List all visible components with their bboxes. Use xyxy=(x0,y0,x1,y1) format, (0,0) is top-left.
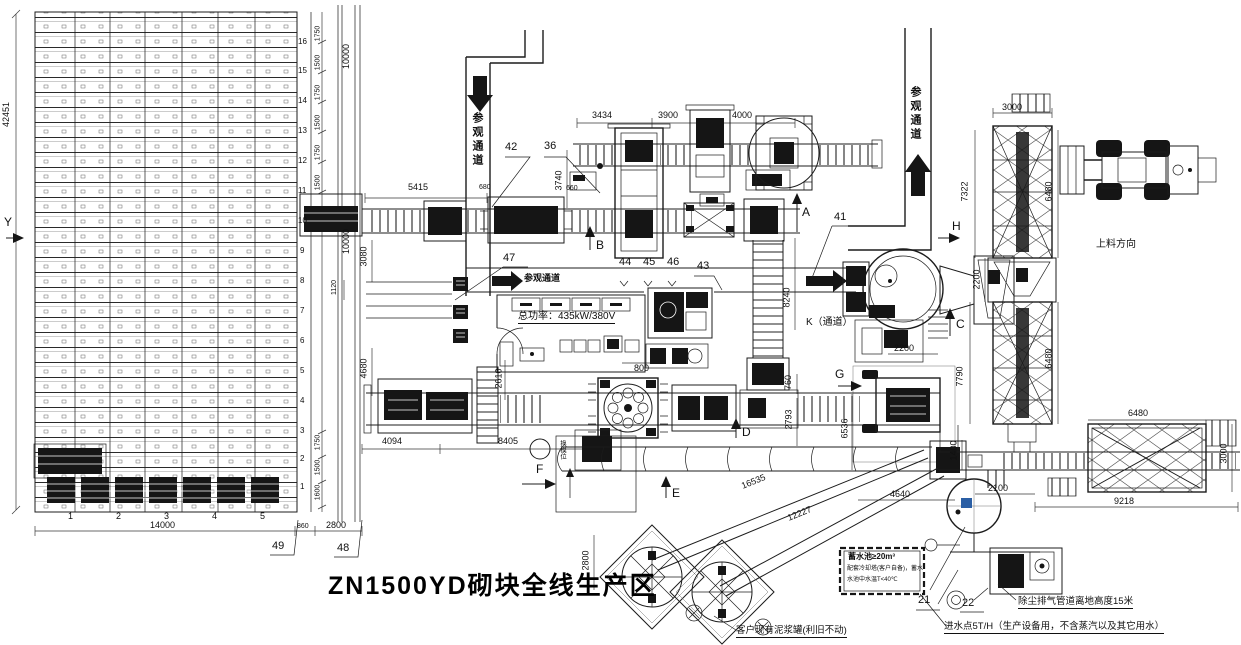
axis-letter-Y: Y xyxy=(4,216,12,228)
axis-letter-G: G xyxy=(835,368,844,380)
dim-6480: 6480 xyxy=(1045,348,1054,368)
row-number: 9 xyxy=(300,247,304,255)
dim-1400: 1400 xyxy=(950,440,959,460)
callout-22: 22 xyxy=(962,598,974,609)
dim-3000: 3000 xyxy=(1220,443,1229,463)
row-number: 4 xyxy=(300,397,304,405)
row-number: 7 xyxy=(300,307,304,315)
col-number: 5 xyxy=(260,512,265,521)
dim-2200: 2200 xyxy=(973,269,982,289)
row-number: 16 xyxy=(298,38,307,46)
callout-49: 49 xyxy=(272,541,284,552)
callout-47: 47 xyxy=(503,253,515,264)
row-number: 6 xyxy=(300,337,304,345)
visitor-passage-label: 参观通道 xyxy=(524,274,560,283)
callout-42: 42 xyxy=(505,142,517,153)
dim-7790: 7790 xyxy=(956,366,965,386)
dim-8240: 8240 xyxy=(783,287,792,307)
blue-marker xyxy=(961,498,972,508)
dim-2800: 2800 xyxy=(326,521,346,530)
dim-800: 800 xyxy=(634,364,649,373)
k-passage-label: K（通道） xyxy=(806,318,853,328)
dim-10000: 10000 xyxy=(342,229,351,254)
dim-pitch: 1600 xyxy=(314,485,321,501)
row-number: 2 xyxy=(300,455,304,463)
axis-letter-H: H xyxy=(952,220,961,232)
callout-48: 48 xyxy=(337,543,349,554)
dim-3000: 3000 xyxy=(1002,103,1022,112)
dim-3740: 3740 xyxy=(555,170,564,190)
dim-1120: 1120 xyxy=(331,280,338,295)
axis-letter-F: F xyxy=(536,463,543,475)
row-number: 14 xyxy=(298,97,307,105)
dim-pitch: 1750 xyxy=(314,26,321,42)
axis-letter-A: A xyxy=(802,206,810,218)
plant-layout-drawing: ZN1500YD砌块全线生产区 参观通道 参观通道 参观通道 K（通道） 上料方… xyxy=(0,0,1241,645)
aggregate-rack-upper xyxy=(993,94,1052,258)
visitor-passage-label: 参观通道 xyxy=(471,112,482,168)
mold-change-label: 换模位 xyxy=(558,440,565,460)
dim-2610: 2610 xyxy=(495,368,504,388)
callout-21: 21 xyxy=(918,595,930,606)
pool-note-line1: 蓄水池≥20m³ xyxy=(848,553,895,561)
cad-linework xyxy=(0,0,1241,645)
col-number: 4 xyxy=(212,512,217,521)
dim-760: 760 xyxy=(784,375,793,390)
aggregate-rack-lower xyxy=(993,302,1052,452)
pool-note-line2: 配套冷却塔(客户自备)，蓄水 xyxy=(847,566,923,572)
drawing-title: ZN1500YD砌块全线生产区 xyxy=(328,574,657,599)
callout-44: 44 xyxy=(619,257,631,268)
pool-note-line3: 水池中水温T<40℃ xyxy=(847,577,898,583)
water-inlet-note: 进水点5T/H（生产设备用，不含蒸汽以及其它用水） xyxy=(944,622,1164,634)
vertical-hoist xyxy=(747,240,789,390)
row-number: 1 xyxy=(300,483,304,491)
dim-4680: 4680 xyxy=(360,358,369,378)
hydraulic-room xyxy=(646,288,712,368)
dim-3900: 3900 xyxy=(658,111,678,120)
top-conveyor-line xyxy=(570,105,882,258)
flow-arrow-up-icon xyxy=(905,154,931,196)
callout-46: 46 xyxy=(667,257,679,268)
dim-pitch: 1500 xyxy=(314,115,321,131)
col-number: 3 xyxy=(164,512,169,521)
dim-pitch: 1750 xyxy=(314,435,321,451)
dim-pitch: 1750 xyxy=(314,85,321,101)
total-power-label: 总功率：435kW/380V xyxy=(518,312,615,324)
row-number: 10 xyxy=(298,217,307,225)
control-room xyxy=(495,295,645,372)
flow-arrow-down-icon xyxy=(467,76,493,112)
dim-pitch: 1500 xyxy=(314,55,321,71)
tilting-machine xyxy=(686,105,734,206)
row-number: 11 xyxy=(298,187,306,195)
dim-660: 660 xyxy=(566,185,578,192)
row-number: 8 xyxy=(300,277,304,285)
dim-9218: 9218 xyxy=(1114,497,1134,506)
wheel-loader xyxy=(1060,140,1216,200)
dim-10000: 10000 xyxy=(342,44,351,69)
axis-letter-E: E xyxy=(672,487,680,499)
axis-letter-B: B xyxy=(596,239,604,251)
dim-pitch: 1500 xyxy=(314,460,321,476)
pallet-row xyxy=(47,477,279,503)
dim-5415: 5415 xyxy=(408,183,428,192)
dim-860: 860 xyxy=(297,523,309,530)
dim-2200: 2200 xyxy=(894,344,914,353)
row-number: 3 xyxy=(300,427,304,435)
dim-4094: 4094 xyxy=(382,437,402,446)
curing-rack xyxy=(34,12,326,512)
dim-8405: 8405 xyxy=(498,437,518,446)
axis-letter-D: D xyxy=(742,426,751,438)
dim-42451: 42451 xyxy=(2,102,11,127)
cable-trays xyxy=(366,277,468,343)
visitor-passage-label: 参观通道 xyxy=(909,86,920,142)
callout-45: 45 xyxy=(643,257,655,268)
dim-680: 680 xyxy=(479,184,491,191)
dim-6480: 6480 xyxy=(1128,409,1148,418)
flow-arrow-right-icon xyxy=(806,270,847,292)
row-number: 13 xyxy=(298,127,307,135)
dim-2100: 2100 xyxy=(988,484,1008,493)
dim-14000: 14000 xyxy=(150,521,175,530)
callout-43: 43 xyxy=(697,261,709,272)
dim-4000: 4000 xyxy=(732,111,752,120)
dim-2800: 2800 xyxy=(582,550,591,570)
callout-41: 41 xyxy=(834,212,846,223)
dim-6536: 6536 xyxy=(841,418,850,438)
dim-3080: 3080 xyxy=(360,246,369,266)
slurry-tank-note: 客户现有泥浆罐(利旧不动) xyxy=(736,626,847,638)
dim-2793: 2793 xyxy=(785,409,794,429)
loading-direction-label: 上料方向 xyxy=(1096,240,1136,250)
slurry-pipes xyxy=(652,450,944,596)
row-number: 15 xyxy=(298,67,307,75)
rotary-block-machine xyxy=(588,378,668,438)
row-number: 5 xyxy=(300,367,304,375)
rack-corridor xyxy=(300,5,362,522)
dim-4640: 4640 xyxy=(890,490,910,499)
dim-pitch: 1750 xyxy=(314,145,321,161)
col-number: 2 xyxy=(116,512,121,521)
axis-letter-C: C xyxy=(956,318,965,330)
dim-3434: 3434 xyxy=(592,111,612,120)
dim-7322: 7322 xyxy=(961,181,970,201)
dim-6480: 6480 xyxy=(1045,181,1054,201)
production-line-2 xyxy=(364,367,940,443)
row-number: 12 xyxy=(298,157,307,165)
dim-pitch: 1500 xyxy=(314,175,321,191)
callout-36: 36 xyxy=(544,141,556,152)
col-number: 1 xyxy=(68,512,73,521)
flow-arrow-right-icon xyxy=(492,271,523,291)
dust-pipe-note: 除尘排气管道离地高度15米 xyxy=(1018,597,1133,609)
